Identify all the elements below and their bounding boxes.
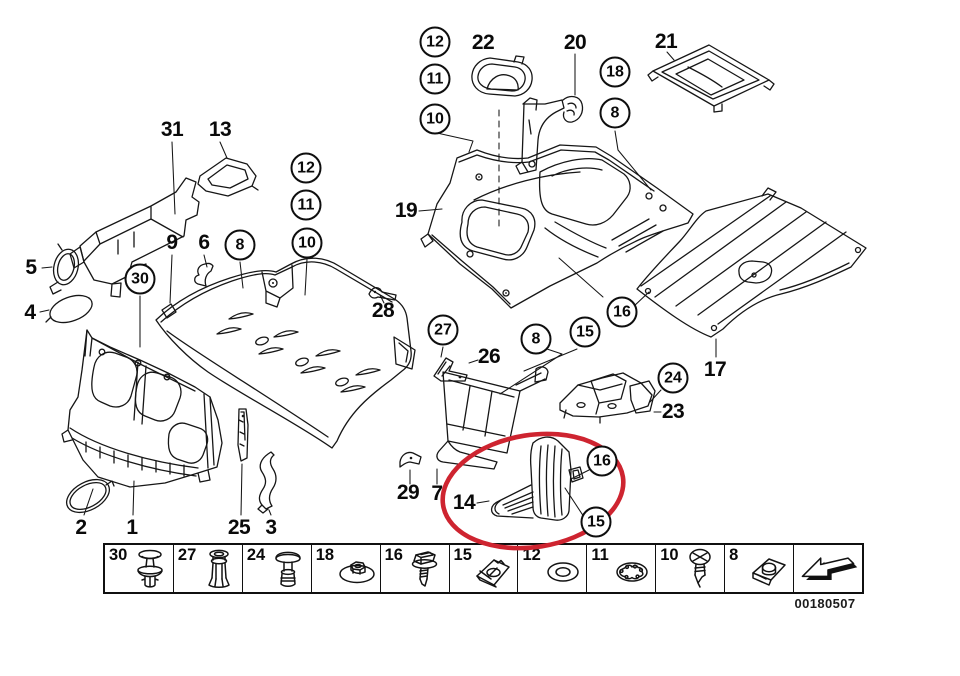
part-25-drawing [238, 409, 248, 461]
circled-callout-30: 30 [125, 264, 156, 295]
image-code: 00180507 [786, 596, 864, 611]
part-label-1: 1 [126, 516, 137, 540]
circled-callout-11: 11 [291, 190, 322, 221]
part-label-19: 19 [395, 199, 417, 223]
circled-callout-8: 8 [225, 230, 256, 261]
circled-callout-8: 8 [600, 98, 631, 129]
circled-callout-12: 12 [291, 153, 322, 184]
circled-callout-8: 8 [521, 324, 552, 355]
legend-cell-12: 12 [518, 545, 587, 592]
legend-cell-11: 11 [587, 545, 656, 592]
back-arrow-icon [796, 549, 860, 591]
part-9-drawing [156, 258, 415, 448]
circled-callout-10: 10 [420, 104, 451, 135]
part-7-drawing [437, 367, 548, 469]
part-label-5: 5 [25, 256, 36, 280]
legend-part-number: 8 [729, 546, 738, 565]
phillips-screw-icon [677, 547, 723, 593]
part-21-drawing [648, 45, 774, 112]
circled-callout-12: 12 [420, 27, 451, 58]
part-label-25: 25 [228, 516, 250, 540]
circled-callout-24: 24 [658, 363, 689, 394]
circled-callout-18: 18 [600, 57, 631, 88]
circled-callout-10: 10 [292, 228, 323, 259]
highlight-ellipse [434, 421, 631, 560]
part-1-drawing [62, 330, 222, 487]
circled-callout-16: 16 [607, 297, 638, 328]
washer-nut-icon [333, 547, 379, 593]
legend-cell-15: 15 [450, 545, 519, 592]
parts-diagram-page: 30 27 24 [0, 0, 960, 676]
part-label-2: 2 [75, 516, 86, 540]
part-label-29: 29 [397, 481, 419, 505]
part-22-drawing [472, 56, 532, 96]
legend-cell-16: 16 [381, 545, 450, 592]
legend-part-number: 10 [660, 546, 678, 565]
push-rivet-icon [126, 547, 172, 593]
part-2-drawing [61, 473, 115, 519]
lock-washer-icon [608, 547, 654, 593]
circled-callout-15: 15 [581, 507, 612, 538]
part-label-22: 22 [472, 31, 494, 55]
part-19-drawing [421, 145, 693, 308]
hex-screw-icon [402, 547, 448, 593]
circled-callout-16: 16 [587, 446, 618, 477]
part-label-26: 26 [478, 345, 500, 369]
legend-part-number: 18 [316, 546, 334, 565]
part-label-14: 14 [453, 491, 475, 515]
washer-icon [539, 547, 585, 593]
clip-nut-icon [746, 547, 792, 593]
part-label-13: 13 [209, 118, 231, 142]
legend-part-number: 12 [522, 546, 540, 565]
circled-callout-11: 11 [420, 64, 451, 95]
fastener-legend: 30 27 24 [103, 543, 864, 594]
part-label-20: 20 [564, 31, 586, 55]
expansion-rivet-icon [195, 547, 241, 593]
rivet-pin-icon [264, 547, 310, 593]
legend-cell-arrow [794, 545, 862, 592]
circled-callout-15: 15 [570, 317, 601, 348]
legend-part-number: 24 [247, 546, 265, 565]
part-label-17: 17 [704, 358, 726, 382]
part-label-28: 28 [372, 299, 394, 323]
leader-lines [40, 52, 716, 517]
legend-part-number: 16 [385, 546, 403, 565]
part-23-drawing [560, 373, 655, 423]
part-13-drawing [198, 158, 258, 196]
legend-cell-24: 24 [243, 545, 312, 592]
part-31-drawing [70, 178, 199, 297]
part-29-drawing [400, 452, 421, 467]
part-label-3: 3 [265, 516, 276, 540]
part-5-drawing [50, 244, 82, 294]
speed-nut-icon [470, 547, 516, 593]
part-label-23: 23 [662, 400, 684, 424]
part-26-drawing [434, 358, 467, 381]
part-28-drawing [369, 288, 396, 300]
legend-cell-10: 10 [656, 545, 725, 592]
circled-callout-27: 27 [428, 315, 459, 346]
part-label-6: 6 [198, 231, 209, 255]
legend-cell-30: 30 [105, 545, 174, 592]
part-4-drawing [46, 290, 96, 328]
legend-cell-8: 8 [725, 545, 794, 592]
part-14-drawing [492, 437, 583, 520]
part-label-21: 21 [655, 30, 677, 54]
legend-part-number: 27 [178, 546, 196, 565]
part-6-drawing [195, 263, 213, 286]
legend-part-number: 30 [109, 546, 127, 565]
legend-cell-27: 27 [174, 545, 243, 592]
part-20-drawing [516, 97, 583, 174]
legend-cell-18: 18 [312, 545, 381, 592]
part-3-drawing [258, 452, 276, 513]
part-17-drawing [637, 188, 866, 337]
part-label-4: 4 [24, 301, 35, 325]
legend-part-number: 11 [591, 546, 608, 565]
part-label-7: 7 [431, 482, 442, 506]
legend-part-number: 15 [454, 546, 472, 565]
part-label-9: 9 [166, 231, 177, 255]
part-label-31: 31 [161, 118, 183, 142]
